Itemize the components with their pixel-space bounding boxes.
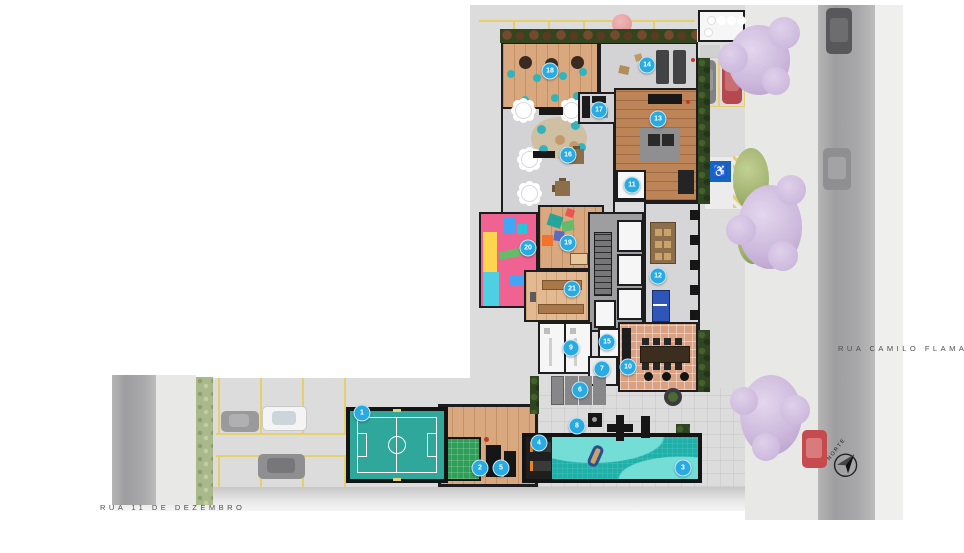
marker-pin-11[interactable]: 11 xyxy=(624,177,641,194)
entry-dots xyxy=(707,16,716,25)
street-right-far-sidewalk xyxy=(875,5,903,520)
console xyxy=(533,151,555,158)
play-mat xyxy=(542,235,553,246)
round-table xyxy=(521,185,538,202)
marker-pin-7[interactable]: 7 xyxy=(594,361,611,378)
street-left-sidewalk xyxy=(156,375,196,505)
marker-pin-2[interactable]: 2 xyxy=(472,460,489,477)
marker-pin-5[interactable]: 5 xyxy=(493,460,510,477)
parking-line xyxy=(218,455,220,487)
stools xyxy=(642,338,649,345)
parked-car-gray-side xyxy=(221,411,259,432)
round-table xyxy=(515,102,532,119)
stairs xyxy=(594,232,612,296)
deck-chairs xyxy=(507,70,515,78)
plant-red xyxy=(691,58,695,62)
pool-frame xyxy=(522,433,702,483)
planter-green xyxy=(668,392,678,402)
gourmet-table xyxy=(640,346,690,363)
plates xyxy=(655,229,662,236)
elevator xyxy=(617,220,643,252)
pool-bush xyxy=(676,424,690,433)
tree-puff xyxy=(726,215,756,245)
site-plan: RUA 11 DE DEZEMBRO RUA CAMILO FLAMARION xyxy=(0,0,964,553)
play-mat xyxy=(565,208,575,218)
marker-pin-17[interactable]: 17 xyxy=(591,102,608,119)
rug-small xyxy=(618,65,629,75)
street-right-label: RUA CAMILO FLAMARION xyxy=(838,344,964,353)
play-block-teal xyxy=(483,272,499,306)
kids-table xyxy=(570,253,588,265)
car-on-road-dark xyxy=(826,8,852,54)
marker-pin-20[interactable]: 20 xyxy=(520,240,537,257)
side-hedge xyxy=(698,58,710,204)
court-goal-area xyxy=(357,433,367,457)
marker-pin-1[interactable]: 1 xyxy=(354,405,371,422)
plant-red xyxy=(484,437,489,442)
marker-pin-6[interactable]: 6 xyxy=(572,382,589,399)
service-room xyxy=(594,300,616,328)
sun-lounger xyxy=(656,50,669,84)
marker-pin-10[interactable]: 10 xyxy=(620,359,637,376)
marker-pin-4[interactable]: 4 xyxy=(531,435,548,452)
gym-mat xyxy=(640,128,680,162)
marker-pin-18[interactable]: 18 xyxy=(542,63,559,80)
entry-dot xyxy=(704,28,713,37)
car-roof xyxy=(828,157,846,179)
lilac-tree xyxy=(738,185,802,269)
console xyxy=(539,107,563,115)
dining-table xyxy=(555,181,570,196)
round-planter xyxy=(664,388,682,406)
court-mark xyxy=(393,409,401,412)
car-roof xyxy=(806,438,822,458)
side-hedge xyxy=(698,330,710,392)
entry-pad xyxy=(700,45,720,57)
car-cabin xyxy=(272,411,296,425)
play-block-blue xyxy=(503,218,515,234)
lilac-tree xyxy=(728,25,790,95)
marker-pin-13[interactable]: 13 xyxy=(650,111,667,128)
shower-head xyxy=(592,417,597,422)
court-center-circle xyxy=(388,436,406,454)
elevator xyxy=(617,288,643,320)
car-roof xyxy=(830,18,848,42)
core-circulation xyxy=(588,212,644,332)
plant-red xyxy=(686,100,690,104)
court-goal-area xyxy=(427,433,437,457)
pool-bed xyxy=(530,461,551,471)
street-left-hedge xyxy=(196,377,213,505)
tree-puff xyxy=(768,241,798,271)
parked-suv-gray-side xyxy=(258,454,305,479)
marker-pin-21[interactable]: 21 xyxy=(564,281,581,298)
marker-pin-12[interactable]: 12 xyxy=(650,268,667,285)
side-hedge xyxy=(530,376,539,414)
tree-puff xyxy=(730,387,758,415)
tree-puff xyxy=(752,433,780,461)
deck-tables xyxy=(519,56,532,69)
fixture xyxy=(570,328,576,334)
marker-pin-16[interactable]: 16 xyxy=(560,147,577,164)
marker-pin-9[interactable]: 9 xyxy=(563,340,580,357)
street-left-label: RUA 11 DE DEZEMBRO xyxy=(100,503,245,512)
car-cabin xyxy=(267,458,295,473)
cross-planter xyxy=(616,415,624,441)
court-mark xyxy=(393,478,401,481)
street-left-label-wrap: RUA 11 DE DEZEMBRO xyxy=(100,497,245,515)
ping-pong-table xyxy=(652,290,670,322)
parking-line xyxy=(216,433,346,435)
planter-row xyxy=(690,210,700,220)
play-block-blue xyxy=(509,276,525,286)
stool xyxy=(530,292,536,302)
gym-machine xyxy=(678,170,694,194)
terrace-table xyxy=(650,222,676,264)
rug-poufs xyxy=(555,135,565,145)
play-mat xyxy=(561,220,575,232)
accessible-parking-sign: ♿ xyxy=(709,161,731,182)
parking-line xyxy=(218,378,220,435)
tree-puff xyxy=(780,395,810,425)
marker-pin-8[interactable]: 8 xyxy=(569,418,586,435)
tree-puff xyxy=(762,67,790,95)
rug-seats xyxy=(537,125,546,134)
car-cabin xyxy=(229,414,249,427)
lilac-tree xyxy=(740,375,802,455)
marker-pin-15[interactable]: 15 xyxy=(599,334,616,351)
parking-line xyxy=(479,20,695,22)
pool-float xyxy=(586,444,605,469)
room-gourmet xyxy=(618,322,698,392)
round-stools xyxy=(644,372,653,381)
play-block xyxy=(517,224,527,234)
tree-puff xyxy=(718,43,748,73)
kitchen-counter xyxy=(582,96,590,118)
marker-pin-19[interactable]: 19 xyxy=(560,235,577,252)
outdoor-shower xyxy=(588,413,602,427)
tree-puff xyxy=(768,17,800,49)
street-left-road xyxy=(112,375,156,505)
play-block-green xyxy=(498,248,521,260)
planter xyxy=(641,416,650,438)
sun-lounger xyxy=(673,50,686,84)
street-right-label-wrap: RUA CAMILO FLAMARION xyxy=(838,338,964,356)
gym-rack xyxy=(648,94,682,104)
rooftop-hedge xyxy=(500,29,697,43)
elevator xyxy=(617,254,643,286)
bench xyxy=(549,338,552,366)
gym-weights xyxy=(648,134,660,146)
marker-pin-3[interactable]: 3 xyxy=(675,460,692,477)
ping-pong-net xyxy=(653,304,667,306)
marker-pin-14[interactable]: 14 xyxy=(639,57,656,74)
pool-loungers xyxy=(551,376,564,405)
fixture xyxy=(544,328,550,334)
parked-car-white-side xyxy=(262,406,307,431)
car-on-road-gray xyxy=(823,148,851,190)
tree-puff xyxy=(776,175,806,205)
bench xyxy=(538,304,584,314)
